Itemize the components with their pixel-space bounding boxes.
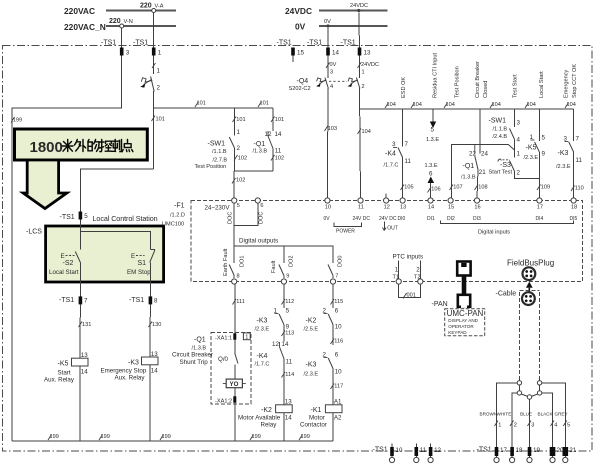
svg-text:1: 1	[395, 267, 399, 274]
svg-text:18: 18	[571, 205, 577, 211]
svg-text:PTC inputs: PTC inputs	[393, 254, 424, 261]
svg-text:2: 2	[416, 267, 420, 274]
svg-text:8: 8	[237, 274, 240, 280]
svg-text:-K4: -K4	[257, 353, 268, 360]
svg-text:WHITE: WHITE	[497, 412, 512, 417]
svg-text:S1: S1	[138, 260, 147, 267]
svg-text:8: 8	[154, 298, 158, 305]
svg-text:101: 101	[260, 101, 269, 107]
svg-text:/2.7.B: /2.7.B	[213, 158, 228, 164]
svg-text:105: 105	[404, 185, 413, 191]
svg-text:17: 17	[537, 205, 543, 211]
svg-text:1: 1	[245, 335, 248, 341]
svg-text:2: 2	[157, 85, 161, 92]
svg-text:5: 5	[286, 308, 290, 315]
svg-text:102: 102	[275, 156, 284, 162]
svg-text:-S3: -S3	[500, 162, 511, 169]
svg-text:Digital outputs: Digital outputs	[239, 238, 278, 245]
svg-text:A2: A2	[334, 415, 342, 422]
svg-text:6: 6	[335, 352, 339, 359]
svg-text:1: 1	[362, 70, 365, 76]
svg-text:199: 199	[101, 434, 110, 440]
svg-text:9: 9	[542, 151, 546, 158]
svg-text:/2.4.B: /2.4.B	[493, 134, 508, 140]
svg-text:3: 3	[330, 70, 333, 76]
svg-text:21: 21	[479, 169, 486, 176]
svg-text:-TS1: -TS1	[373, 447, 388, 454]
svg-text:-S2: -S2	[63, 260, 74, 267]
svg-text:-Q1: -Q1	[463, 163, 475, 170]
svg-text:112: 112	[285, 299, 294, 305]
svg-text:0V: 0V	[330, 62, 337, 68]
svg-text:Relay: Relay	[261, 422, 278, 429]
svg-text:/1.1.B: /1.1.B	[493, 127, 508, 133]
svg-text:Contactor: Contactor	[300, 422, 327, 429]
svg-text:E: E	[131, 253, 135, 260]
svg-text:V-A: V-A	[155, 4, 164, 10]
svg-text:14: 14	[282, 341, 289, 348]
svg-text:15: 15	[448, 205, 454, 211]
svg-text:-F1: -F1	[174, 203, 185, 210]
svg-text:4: 4	[517, 137, 521, 144]
svg-text:Circuit Breaker: Circuit Breaker	[475, 61, 481, 98]
svg-text:117: 117	[334, 384, 343, 390]
svg-text:2: 2	[514, 423, 517, 429]
svg-text:/1.3.B: /1.3.B	[461, 175, 476, 181]
svg-text:Residua CTI Input: Residua CTI Input	[433, 52, 439, 98]
svg-text:107: 107	[453, 185, 462, 191]
svg-text:1: 1	[498, 423, 501, 429]
svg-text:DOC: DOC	[258, 212, 264, 224]
svg-text:/1.7.C: /1.7.C	[255, 362, 270, 368]
svg-text:Closed: Closed	[483, 81, 489, 98]
svg-text:116: 116	[334, 339, 343, 345]
svg-text:16: 16	[474, 205, 480, 211]
svg-text:0V: 0V	[324, 19, 331, 25]
svg-text:FieldBusPlug: FieldBusPlug	[507, 259, 554, 268]
svg-text:6: 6	[335, 308, 339, 315]
svg-text:DO0: DO0	[338, 255, 344, 267]
svg-text:BLACK: BLACK	[538, 412, 554, 417]
svg-text:DI2: DI2	[447, 216, 455, 222]
svg-text:2: 2	[362, 84, 365, 90]
svg-text:5: 5	[431, 127, 435, 134]
svg-text:-K2: -K2	[261, 407, 272, 414]
svg-text:18: 18	[516, 447, 523, 454]
svg-text:1: 1	[237, 129, 241, 136]
svg-text:7: 7	[405, 141, 409, 148]
svg-text:Q/0: Q/0	[218, 356, 229, 363]
svg-text:4: 4	[554, 423, 557, 429]
svg-text:220: 220	[140, 3, 152, 10]
svg-text:KEYPAD: KEYPAD	[448, 330, 467, 335]
svg-text:21: 21	[569, 447, 576, 454]
svg-text:11: 11	[358, 205, 364, 211]
svg-text:-TS1: -TS1	[341, 40, 356, 47]
svg-text:Emergency Stop: Emergency Stop	[101, 368, 147, 375]
svg-text:-Cable: -Cable	[496, 291, 517, 298]
svg-text:114: 114	[285, 372, 294, 378]
svg-text:GREY: GREY	[555, 412, 568, 417]
svg-text:101: 101	[275, 117, 284, 123]
svg-text:001: 001	[407, 293, 416, 299]
svg-text:10: 10	[325, 205, 331, 211]
svg-text:104: 104	[387, 102, 396, 108]
svg-text:24V DC: 24V DC	[379, 216, 397, 222]
svg-text:1: 1	[517, 151, 521, 158]
svg-text:-TS1: -TS1	[477, 447, 492, 454]
svg-text:POWER: POWER	[336, 229, 355, 235]
svg-text:12: 12	[272, 341, 279, 348]
svg-text:24~230V: 24~230V	[205, 205, 231, 212]
svg-text:Digital inputs: Digital inputs	[478, 230, 510, 236]
svg-text:101: 101	[236, 117, 245, 123]
svg-text:/2.3.E: /2.3.E	[556, 164, 571, 170]
svg-text:7: 7	[84, 298, 88, 305]
svg-text:-Q1: -Q1	[194, 337, 206, 344]
svg-text:103: 103	[328, 126, 337, 132]
svg-text:5: 5	[237, 203, 240, 209]
svg-text:12: 12	[384, 205, 390, 211]
svg-text:13: 13	[364, 50, 371, 57]
svg-text:24VDC: 24VDC	[361, 62, 379, 68]
svg-text:Local Start: Local Start	[49, 269, 79, 276]
svg-text:4: 4	[330, 84, 333, 90]
svg-text:5: 5	[567, 423, 570, 429]
svg-text:EM Stop: EM Stop	[127, 269, 151, 276]
svg-text:Test Position: Test Position	[455, 66, 461, 98]
svg-text:Test Position: Test Position	[195, 164, 227, 170]
svg-text:-TS1: -TS1	[60, 214, 75, 221]
svg-text:0V: 0V	[295, 22, 306, 32]
svg-text:E: E	[61, 253, 65, 260]
svg-text:Motor Available: Motor Available	[238, 415, 281, 422]
svg-text:Shunt Trip: Shunt Trip	[180, 359, 209, 366]
svg-text:Earth Fault: Earth Fault	[223, 248, 229, 276]
svg-text:9: 9	[286, 324, 290, 331]
svg-text:15: 15	[297, 50, 304, 57]
svg-text:OPERATOR: OPERATOR	[448, 324, 474, 329]
svg-text:101: 101	[156, 117, 165, 123]
svg-text:-XA1:2: -XA1:2	[215, 398, 232, 404]
svg-text:19: 19	[533, 447, 540, 454]
svg-text:-K3: -K3	[306, 362, 317, 369]
svg-text:104: 104	[413, 102, 422, 108]
svg-text:-K3: -K3	[128, 360, 139, 367]
svg-text:220VAC_N: 220VAC_N	[64, 22, 106, 32]
svg-text:24: 24	[481, 151, 488, 158]
svg-text:Emergency: Emergency	[564, 70, 570, 98]
svg-text:Circuit Breaker: Circuit Breaker	[172, 352, 213, 359]
svg-text:7: 7	[576, 136, 580, 143]
svg-text:3: 3	[126, 50, 130, 57]
svg-text:104: 104	[362, 129, 371, 135]
svg-text:5: 5	[84, 213, 88, 220]
svg-text:14: 14	[332, 50, 339, 57]
svg-text:-XA1:1: -XA1:1	[215, 336, 232, 342]
svg-text:111: 111	[236, 299, 245, 305]
svg-text:Local Start: Local Start	[539, 71, 545, 98]
svg-text:Stop CCT OK: Stop CCT OK	[572, 64, 578, 98]
svg-text:/1.7.C: /1.7.C	[384, 163, 399, 169]
svg-text:/2.3.E: /2.3.E	[255, 327, 270, 333]
svg-text:-SW1: -SW1	[208, 141, 226, 148]
svg-text:/2.5.E: /2.5.E	[304, 327, 319, 333]
svg-text:-Q4: -Q4	[297, 78, 309, 85]
svg-text:130: 130	[152, 322, 161, 328]
svg-text:UMC-PAN: UMC-PAN	[447, 309, 484, 318]
svg-text:7: 7	[335, 274, 338, 280]
svg-text:1800: 1800	[30, 139, 63, 156]
svg-text:14: 14	[285, 415, 292, 422]
svg-text:10: 10	[335, 324, 342, 331]
svg-text:220: 220	[109, 18, 121, 25]
svg-text:3: 3	[517, 120, 521, 127]
svg-text:/2.3.E: /2.3.E	[304, 372, 319, 378]
svg-text:14: 14	[275, 131, 282, 138]
svg-text:-TS1: -TS1	[101, 40, 116, 47]
svg-text:24VDC: 24VDC	[285, 6, 312, 16]
svg-text:6: 6	[260, 203, 263, 209]
svg-text:/1.3.B: /1.3.B	[253, 149, 268, 155]
svg-text:9: 9	[286, 274, 289, 280]
svg-text:-PAN: -PAN	[432, 301, 448, 308]
svg-text:10: 10	[335, 369, 342, 376]
svg-text:1: 1	[158, 50, 162, 57]
svg-text:Test Start: Test Start	[513, 74, 519, 98]
svg-text:OUT: OUT	[387, 226, 398, 232]
svg-text:-SW1: -SW1	[489, 118, 507, 125]
svg-text:17: 17	[500, 447, 507, 454]
svg-text:199: 199	[162, 434, 171, 440]
svg-text:104: 104	[527, 102, 536, 108]
svg-text:0V: 0V	[324, 216, 331, 222]
svg-text:DO2: DO2	[288, 255, 294, 267]
svg-text:24V DC: 24V DC	[353, 216, 371, 222]
svg-text:14: 14	[81, 369, 88, 376]
svg-text:199: 199	[252, 434, 261, 440]
svg-text:109: 109	[541, 185, 550, 191]
svg-text:11: 11	[275, 148, 282, 155]
svg-text:115: 115	[334, 299, 343, 305]
svg-text:1.3.E: 1.3.E	[425, 163, 438, 169]
svg-text:3: 3	[392, 141, 396, 148]
svg-text:104: 104	[567, 102, 576, 108]
svg-text:102: 102	[236, 178, 245, 184]
svg-text:Fault: Fault	[271, 260, 277, 273]
svg-text:/1.2.D: /1.2.D	[170, 213, 185, 219]
svg-text:DOC: DOC	[228, 212, 234, 224]
svg-text:220VAC: 220VAC	[64, 6, 95, 16]
svg-text:ESD OK: ESD OK	[401, 77, 407, 98]
svg-text:106: 106	[431, 187, 440, 193]
svg-text:104: 104	[446, 102, 455, 108]
svg-text:1: 1	[157, 68, 161, 75]
svg-text:14: 14	[428, 205, 434, 211]
svg-text:5: 5	[542, 135, 546, 142]
svg-text:/2.3.E: /2.3.E	[524, 155, 539, 161]
svg-text:11: 11	[420, 447, 427, 454]
svg-text:-TS1: -TS1	[133, 40, 148, 47]
svg-text:DI4: DI4	[536, 216, 544, 222]
svg-text:104: 104	[492, 102, 501, 108]
svg-text:-TS1: -TS1	[277, 40, 292, 47]
svg-text:10: 10	[396, 447, 403, 454]
svg-text:DI0: DI0	[398, 216, 406, 222]
svg-text:2: 2	[517, 170, 521, 177]
svg-text:DI1: DI1	[427, 216, 435, 222]
svg-text:S202-C2: S202-C2	[289, 86, 311, 92]
svg-text:-TS1: -TS1	[129, 297, 144, 304]
svg-text:DI3: DI3	[473, 216, 481, 222]
svg-text:108: 108	[478, 185, 487, 191]
svg-text:-TS1: -TS1	[307, 40, 322, 47]
svg-text:199: 199	[301, 434, 310, 440]
svg-text:Start: Start	[58, 370, 71, 377]
svg-text:11: 11	[286, 359, 293, 366]
svg-text:2: 2	[237, 145, 241, 152]
svg-text:-K5: -K5	[526, 145, 537, 152]
svg-text:101: 101	[197, 101, 206, 107]
svg-text:Motor: Motor	[309, 415, 325, 422]
svg-text:-K5: -K5	[58, 361, 69, 368]
svg-text:-K1: -K1	[311, 407, 322, 414]
svg-text:-LCS: -LCS	[26, 229, 42, 236]
svg-text:1.3.E: 1.3.E	[426, 137, 439, 143]
svg-text:113: 113	[285, 331, 294, 337]
svg-text:-K2: -K2	[306, 318, 317, 325]
svg-text:14: 14	[151, 367, 158, 374]
svg-text:199: 199	[13, 118, 22, 124]
svg-text:199: 199	[50, 434, 59, 440]
svg-text:-Q1: -Q1	[254, 141, 266, 148]
svg-text:V-N: V-N	[124, 19, 133, 25]
svg-text:-K4: -K4	[385, 151, 396, 158]
svg-text:DISPLAY AND: DISPLAY AND	[448, 318, 478, 323]
svg-text:DO1: DO1	[239, 255, 245, 267]
svg-text:Local Control Station: Local Control Station	[93, 214, 158, 223]
svg-text:UMC100: UMC100	[162, 222, 184, 228]
svg-text:24VDC: 24VDC	[350, 3, 368, 9]
svg-text:6: 6	[429, 171, 433, 178]
svg-text:Aux. Relay: Aux. Relay	[115, 375, 146, 382]
svg-text:102: 102	[238, 156, 247, 162]
svg-text:Aux. Relay: Aux. Relay	[44, 377, 75, 384]
svg-text:11: 11	[405, 158, 412, 165]
svg-text:11: 11	[576, 157, 583, 164]
svg-text:-TS1: -TS1	[59, 297, 74, 304]
svg-text:/1.1.B: /1.1.B	[212, 149, 227, 155]
svg-text:-K3: -K3	[257, 318, 268, 325]
svg-text:13: 13	[400, 205, 406, 211]
svg-text:-K3: -K3	[558, 150, 569, 157]
svg-text:12: 12	[434, 447, 441, 454]
svg-text:3: 3	[531, 423, 534, 429]
svg-text:131: 131	[82, 322, 91, 328]
svg-text:BROWN: BROWN	[480, 412, 498, 417]
svg-text:BLUE: BLUE	[520, 412, 532, 417]
svg-text:YO: YO	[230, 381, 239, 388]
svg-text:Start Test: Start Test	[489, 170, 513, 176]
svg-text:110: 110	[575, 186, 584, 192]
